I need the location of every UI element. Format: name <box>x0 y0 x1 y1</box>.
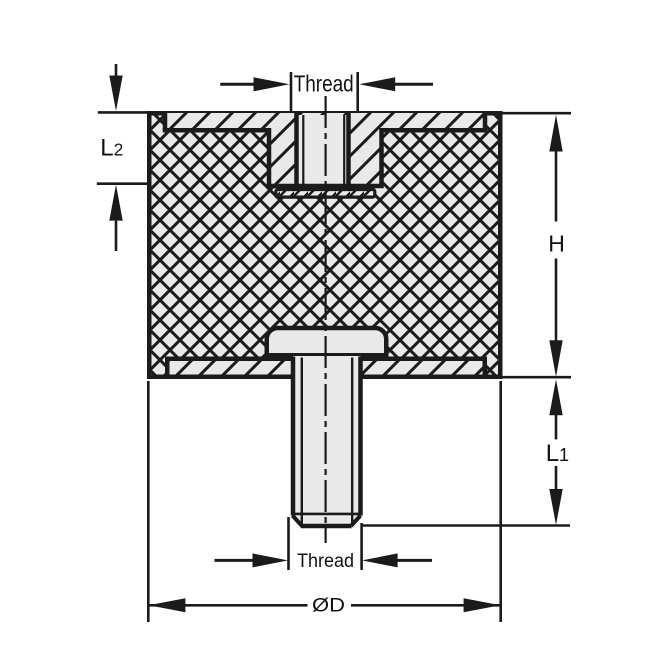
svg-text:L2: L2 <box>100 134 123 161</box>
svg-text:Thread: Thread <box>297 551 354 572</box>
svg-text:ØD: ØD <box>312 595 345 617</box>
svg-text:Thread: Thread <box>294 70 354 96</box>
svg-text:L1: L1 <box>546 440 569 467</box>
svg-text:H: H <box>548 231 565 257</box>
